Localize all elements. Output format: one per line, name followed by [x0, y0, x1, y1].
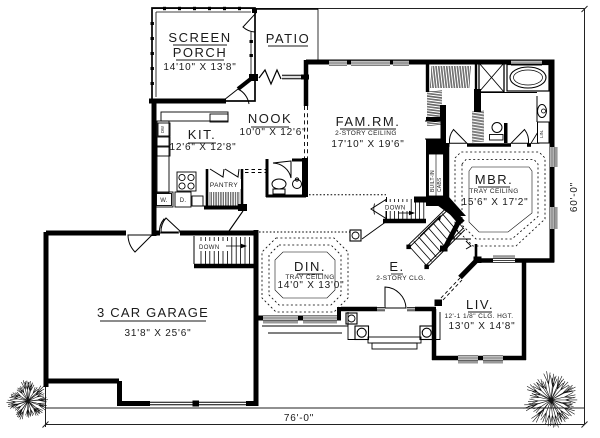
- svg-text:BUILT-IN: BUILT-IN: [430, 170, 436, 192]
- svg-text:LIN.: LIN.: [539, 130, 544, 138]
- svg-text:DIN.: DIN.: [294, 259, 326, 274]
- svg-text:15'6" X 17'2": 15'6" X 17'2": [462, 197, 529, 208]
- svg-text:76'-0": 76'-0": [284, 413, 314, 424]
- svg-text:10'0" X 12'6": 10'0" X 12'6": [240, 127, 307, 138]
- svg-text:PATIO: PATIO: [266, 31, 311, 46]
- svg-text:CABS: CABS: [437, 177, 443, 192]
- svg-text:12'6" X 12'8": 12'6" X 12'8": [170, 142, 237, 153]
- svg-text:SCREEN: SCREEN: [168, 30, 231, 45]
- svg-text:DOWN: DOWN: [385, 206, 406, 212]
- svg-text:DOWN: DOWN: [199, 245, 220, 251]
- svg-text:E.: E.: [389, 259, 404, 274]
- svg-text:31'8" X 25'6": 31'8" X 25'6": [125, 328, 192, 339]
- svg-text:NOOK: NOOK: [248, 111, 292, 126]
- svg-text:14'0" X 13'0": 14'0" X 13'0": [278, 280, 345, 291]
- svg-text:MBR.: MBR.: [475, 172, 514, 187]
- svg-text:PANTRY: PANTRY: [210, 182, 238, 189]
- svg-text:12'-1 1/8" CLG. HGT.: 12'-1 1/8" CLG. HGT.: [445, 313, 514, 320]
- svg-text:60'-0": 60'-0": [569, 182, 580, 212]
- svg-text:FAM.RM.: FAM.RM.: [336, 114, 401, 129]
- svg-text:DW: DW: [160, 126, 165, 133]
- svg-text:17'10" X 19'6": 17'10" X 19'6": [331, 139, 404, 150]
- svg-text:2-STORY CLG.: 2-STORY CLG.: [376, 275, 426, 282]
- svg-text:3 CAR GARAGE: 3 CAR GARAGE: [97, 305, 209, 320]
- svg-text:2-STORY CEILING: 2-STORY CEILING: [335, 130, 397, 137]
- svg-text:13'0" X 14'8": 13'0" X 14'8": [449, 321, 516, 332]
- svg-text:PORCH: PORCH: [173, 45, 227, 60]
- svg-text:KIT.: KIT.: [188, 127, 216, 142]
- svg-text:LIV.: LIV.: [466, 297, 494, 312]
- svg-text:W.: W.: [160, 198, 168, 204]
- svg-text:TRAY CEILING: TRAY CEILING: [469, 188, 518, 195]
- svg-text:14'10" X 13'8": 14'10" X 13'8": [163, 62, 236, 73]
- svg-text:D.: D.: [180, 198, 187, 204]
